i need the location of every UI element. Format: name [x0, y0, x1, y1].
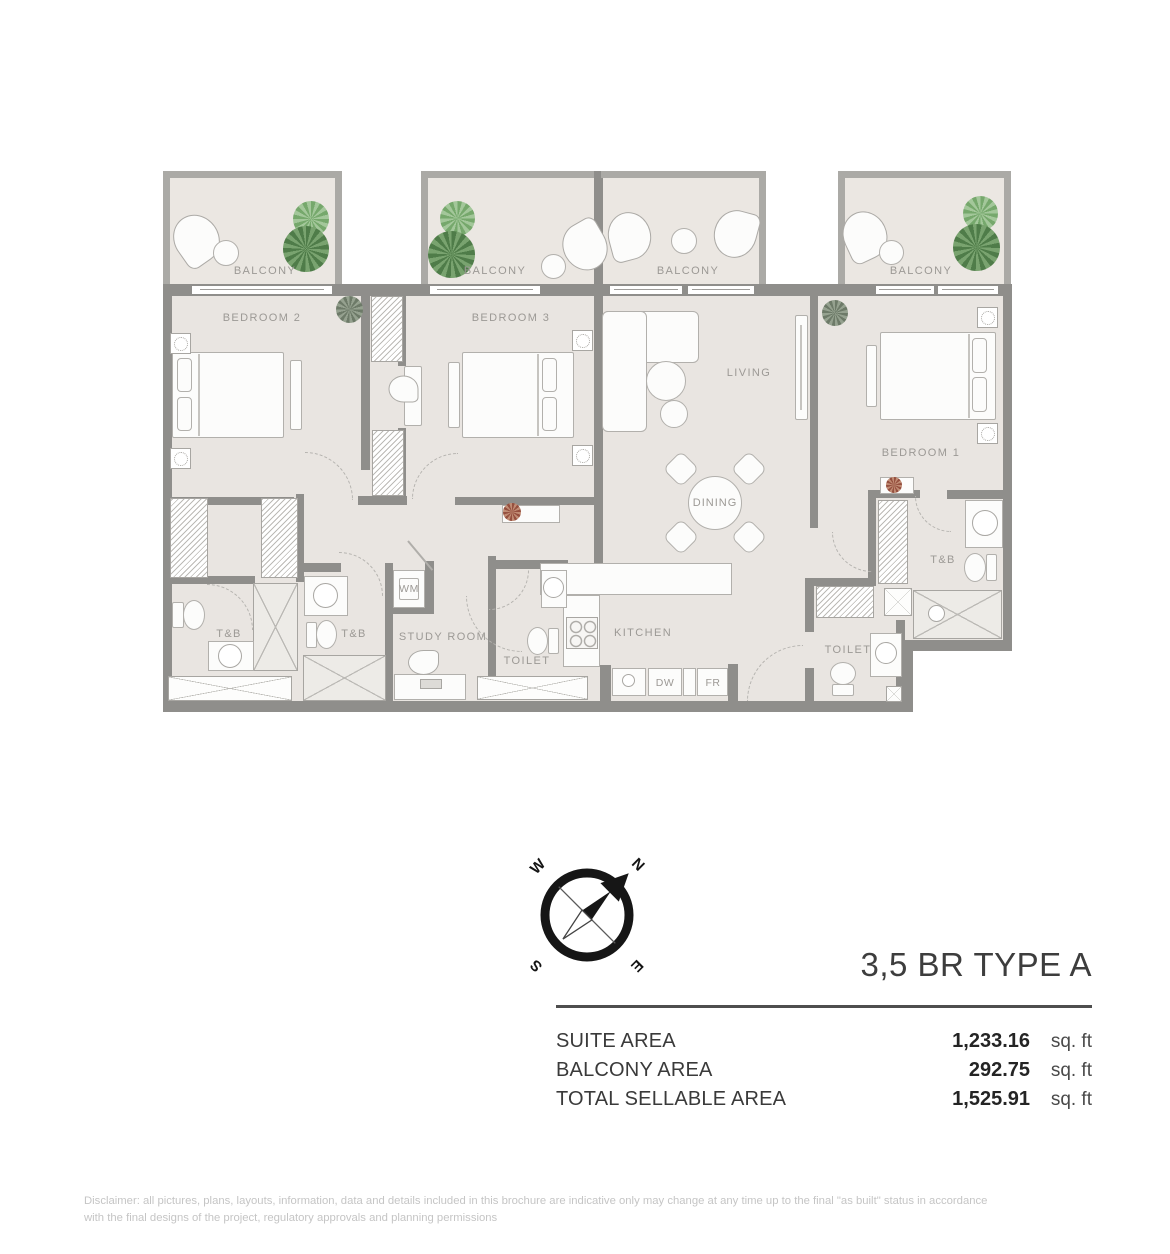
coffee-table [660, 400, 688, 428]
wall [947, 490, 1007, 499]
balcony-wall [838, 171, 1011, 178]
area-row: BALCONY AREA 292.75 sq. ft [556, 1056, 1092, 1085]
pillow [177, 358, 192, 392]
floor-notch [913, 651, 1012, 712]
desk-chair [389, 376, 419, 403]
wall [385, 563, 393, 702]
compass-e: E [627, 956, 646, 975]
disclaimer-text: Disclaimer: all pictures, plans, layouts… [84, 1193, 1096, 1227]
flower-icon [503, 503, 521, 521]
wall [805, 578, 814, 632]
toilet-bowl [830, 662, 856, 685]
balcony-table [541, 254, 566, 279]
balcony-table [879, 240, 904, 265]
wall [810, 290, 818, 528]
flower-icon [886, 477, 902, 493]
room-label-living: LIVING [727, 367, 771, 379]
wardrobe [170, 498, 208, 578]
sliding-door [430, 286, 540, 294]
sliding-door [610, 286, 682, 294]
room-label-wm: WM [399, 583, 419, 595]
ac-vent-icon [572, 445, 593, 466]
ac-ledge [886, 686, 902, 702]
wardrobe [371, 296, 403, 362]
stove [566, 617, 598, 649]
wall [600, 665, 611, 702]
balcony-wall [421, 171, 428, 289]
sliding-door [688, 286, 754, 294]
ac-vent-icon [977, 423, 998, 444]
pillow [177, 397, 192, 431]
shower-corner [884, 588, 912, 616]
wall [303, 563, 341, 572]
sink-basin [875, 642, 897, 664]
balcony-wall [163, 171, 342, 178]
room-label-study: STUDY ROOM [399, 631, 487, 643]
wall [455, 497, 603, 505]
bench [290, 360, 302, 430]
toilet [832, 684, 854, 696]
wall [163, 701, 913, 712]
ac-vent-icon [572, 330, 593, 351]
room-label-balcony-2: BALCONY [464, 265, 526, 277]
sink-basin [313, 583, 338, 608]
room-label-toilet-mid: TOILET [504, 655, 551, 667]
balcony-wall [759, 171, 766, 289]
ac-vent-icon [170, 333, 191, 354]
pillow [542, 397, 557, 431]
ac-ledge [477, 676, 588, 700]
tv-line [800, 325, 802, 410]
coffee-table [646, 361, 686, 401]
bench [448, 362, 460, 428]
balcony-wall [163, 171, 170, 289]
balcony-wall [601, 171, 766, 178]
brochure-page: BALCONY BALCONY BALCONY BALCONY BEDROOM … [0, 0, 1170, 1254]
shower [303, 655, 386, 701]
toilet-bowl [964, 553, 986, 582]
compass-rose: N E S W [502, 830, 672, 1000]
desk-monitor [420, 679, 442, 689]
compass-needle-graphic [502, 830, 672, 1000]
kitchen-cabinet [683, 668, 696, 696]
wall [812, 578, 874, 586]
cabinet-sink [622, 674, 635, 687]
pillow [972, 338, 987, 373]
room-label-bedroom3: BEDROOM 3 [472, 312, 551, 324]
wall [361, 290, 370, 470]
wardrobe [816, 586, 874, 618]
area-row-value: 1,525.91 [880, 1088, 1030, 1111]
wall [358, 496, 407, 505]
plant-icon [822, 300, 848, 326]
room-label-bedroom2: BEDROOM 2 [223, 312, 302, 324]
room-label-tb-left: T&B [216, 628, 242, 640]
area-row-label: TOTAL SELLABLE AREA [556, 1088, 880, 1111]
bed-line [537, 354, 539, 436]
room-label-dw: DW [656, 677, 675, 689]
toilet-bowl [527, 627, 548, 655]
shower-drain [928, 605, 945, 622]
wardrobe [261, 498, 298, 578]
area-row: TOTAL SELLABLE AREA 1,525.91 sq. ft [556, 1085, 1092, 1114]
area-row-value: 292.75 [880, 1059, 1030, 1082]
wall [1003, 284, 1012, 651]
compass-n: N [628, 855, 648, 875]
sliding-door [192, 286, 332, 294]
sink-basin [543, 577, 564, 598]
desk-chair [408, 650, 439, 675]
room-label-toilet-right: TOILET [825, 644, 872, 656]
area-row-value: 1,233.16 [880, 1030, 1030, 1053]
room-label-dining: DINING [693, 497, 738, 509]
toilet [986, 554, 997, 581]
wall [728, 664, 738, 702]
toilet [548, 628, 559, 654]
balcony-table [213, 240, 239, 266]
balcony-wall [421, 171, 601, 178]
ac-ledge [168, 676, 292, 701]
room-label-bedroom1: BEDROOM 1 [882, 447, 961, 459]
area-table: SUITE AREA 1,233.16 sq. ft BALCONY AREA … [556, 1027, 1092, 1114]
ac-vent-icon [977, 307, 998, 328]
room-label-balcony-3: BALCONY [657, 265, 719, 277]
wardrobe [878, 500, 908, 584]
bench [866, 345, 877, 407]
pillow [542, 358, 557, 392]
room-label-kitchen: KITCHEN [614, 627, 672, 639]
plan-title: 3,5 BR TYPE A [860, 946, 1092, 984]
bed [462, 352, 574, 438]
area-row-label: BALCONY AREA [556, 1059, 880, 1082]
sink-basin [218, 644, 242, 668]
area-row-unit: sq. ft [1030, 1089, 1092, 1111]
area-row-label: SUITE AREA [556, 1030, 880, 1053]
floor-plan: BALCONY BALCONY BALCONY BALCONY BEDROOM … [0, 0, 1170, 760]
shower [913, 590, 1002, 639]
area-row: SUITE AREA 1,233.16 sq. ft [556, 1027, 1092, 1056]
balcony-table [671, 228, 697, 254]
compass-s: S [527, 956, 546, 975]
room-label-tb-right: T&B [930, 554, 956, 566]
room-label-balcony-4: BALCONY [890, 265, 952, 277]
plant-icon [953, 224, 1000, 271]
balcony-wall [1004, 171, 1011, 289]
area-row-unit: sq. ft [1030, 1060, 1092, 1082]
wall [908, 640, 1012, 651]
disclaimer-line-1: Disclaimer: all pictures, plans, layouts… [84, 1193, 1096, 1210]
ac-vent-icon [170, 448, 191, 469]
wall [805, 668, 814, 702]
area-row-unit: sq. ft [1030, 1031, 1092, 1053]
disclaimer-line-2: with the final designs of the project, r… [84, 1210, 1096, 1227]
shower [253, 583, 298, 671]
divider-line [556, 1005, 1092, 1008]
balcony-wall [335, 171, 342, 289]
bed-line [968, 334, 970, 418]
pillow [972, 377, 987, 412]
sofa [602, 311, 647, 432]
toilet-bowl [316, 620, 337, 649]
kitchen-counter [540, 563, 732, 595]
sliding-door [876, 286, 934, 294]
toilet-bowl [183, 600, 205, 630]
sliding-door [938, 286, 998, 294]
plant-icon [336, 296, 363, 323]
room-label-balcony-1: BALCONY [234, 265, 296, 277]
sink-basin [972, 510, 998, 536]
bed-line [198, 354, 200, 436]
room-label-tb-mid: T&B [341, 628, 367, 640]
room-label-fr: FR [706, 677, 721, 689]
wardrobe [372, 430, 404, 496]
